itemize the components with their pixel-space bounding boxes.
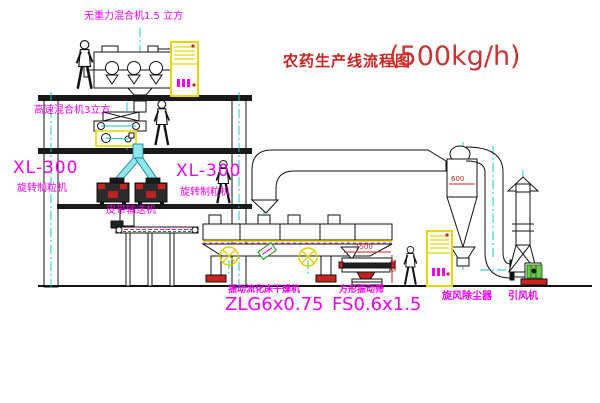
belt-conveyor-drawing: [111, 209, 198, 286]
label-high-speed-mixer: 高速混合机3立方: [34, 106, 110, 116]
exhaust-duct-drawing: [252, 150, 446, 213]
control-cabinet-upper: [171, 42, 198, 96]
label-cyclone: 旋风除尘器: [442, 292, 492, 302]
worker-ground-floor: [404, 246, 417, 284]
stack-drawing: [508, 177, 538, 272]
granulator-left-drawing: [97, 183, 129, 205]
label-screen-model: FS0.6x1.5: [332, 296, 421, 314]
flow-diagram-canvas: 农药生产线流程图 (500kg/h) 无重力混合机1.5 立方 高速混合机3立方…: [0, 0, 600, 403]
worker-second-floor: [154, 100, 169, 145]
induced-fan-drawing: [521, 263, 547, 285]
label-granulator-left-model: XL-300: [13, 160, 78, 177]
label-granulator-right-name: 旋转制粒机: [180, 188, 230, 198]
label-granulator-left-name: 旋转制粒机: [17, 184, 67, 194]
granulator-right-drawing: [135, 183, 167, 205]
control-cabinet-lower: [427, 231, 452, 286]
dimension-screen-height: 545: [389, 259, 396, 272]
dimension-screen-length: 1500: [355, 244, 373, 251]
worker-top-floor: [77, 41, 93, 89]
label-gravity-mixer: 无重力混合机1.5 立方: [84, 12, 183, 22]
label-fan: 引风机: [508, 292, 538, 302]
gravity-mixer-drawing: [84, 46, 184, 95]
label-dryer-model: ZLG6x0.75: [225, 296, 324, 314]
dimension-cyclone-width: 600: [451, 176, 464, 183]
diagram-capacity: (500kg/h): [389, 43, 521, 70]
label-belt-conveyor: 皮带输送机: [106, 206, 156, 216]
label-granulator-right-model: XL-300: [176, 163, 241, 180]
